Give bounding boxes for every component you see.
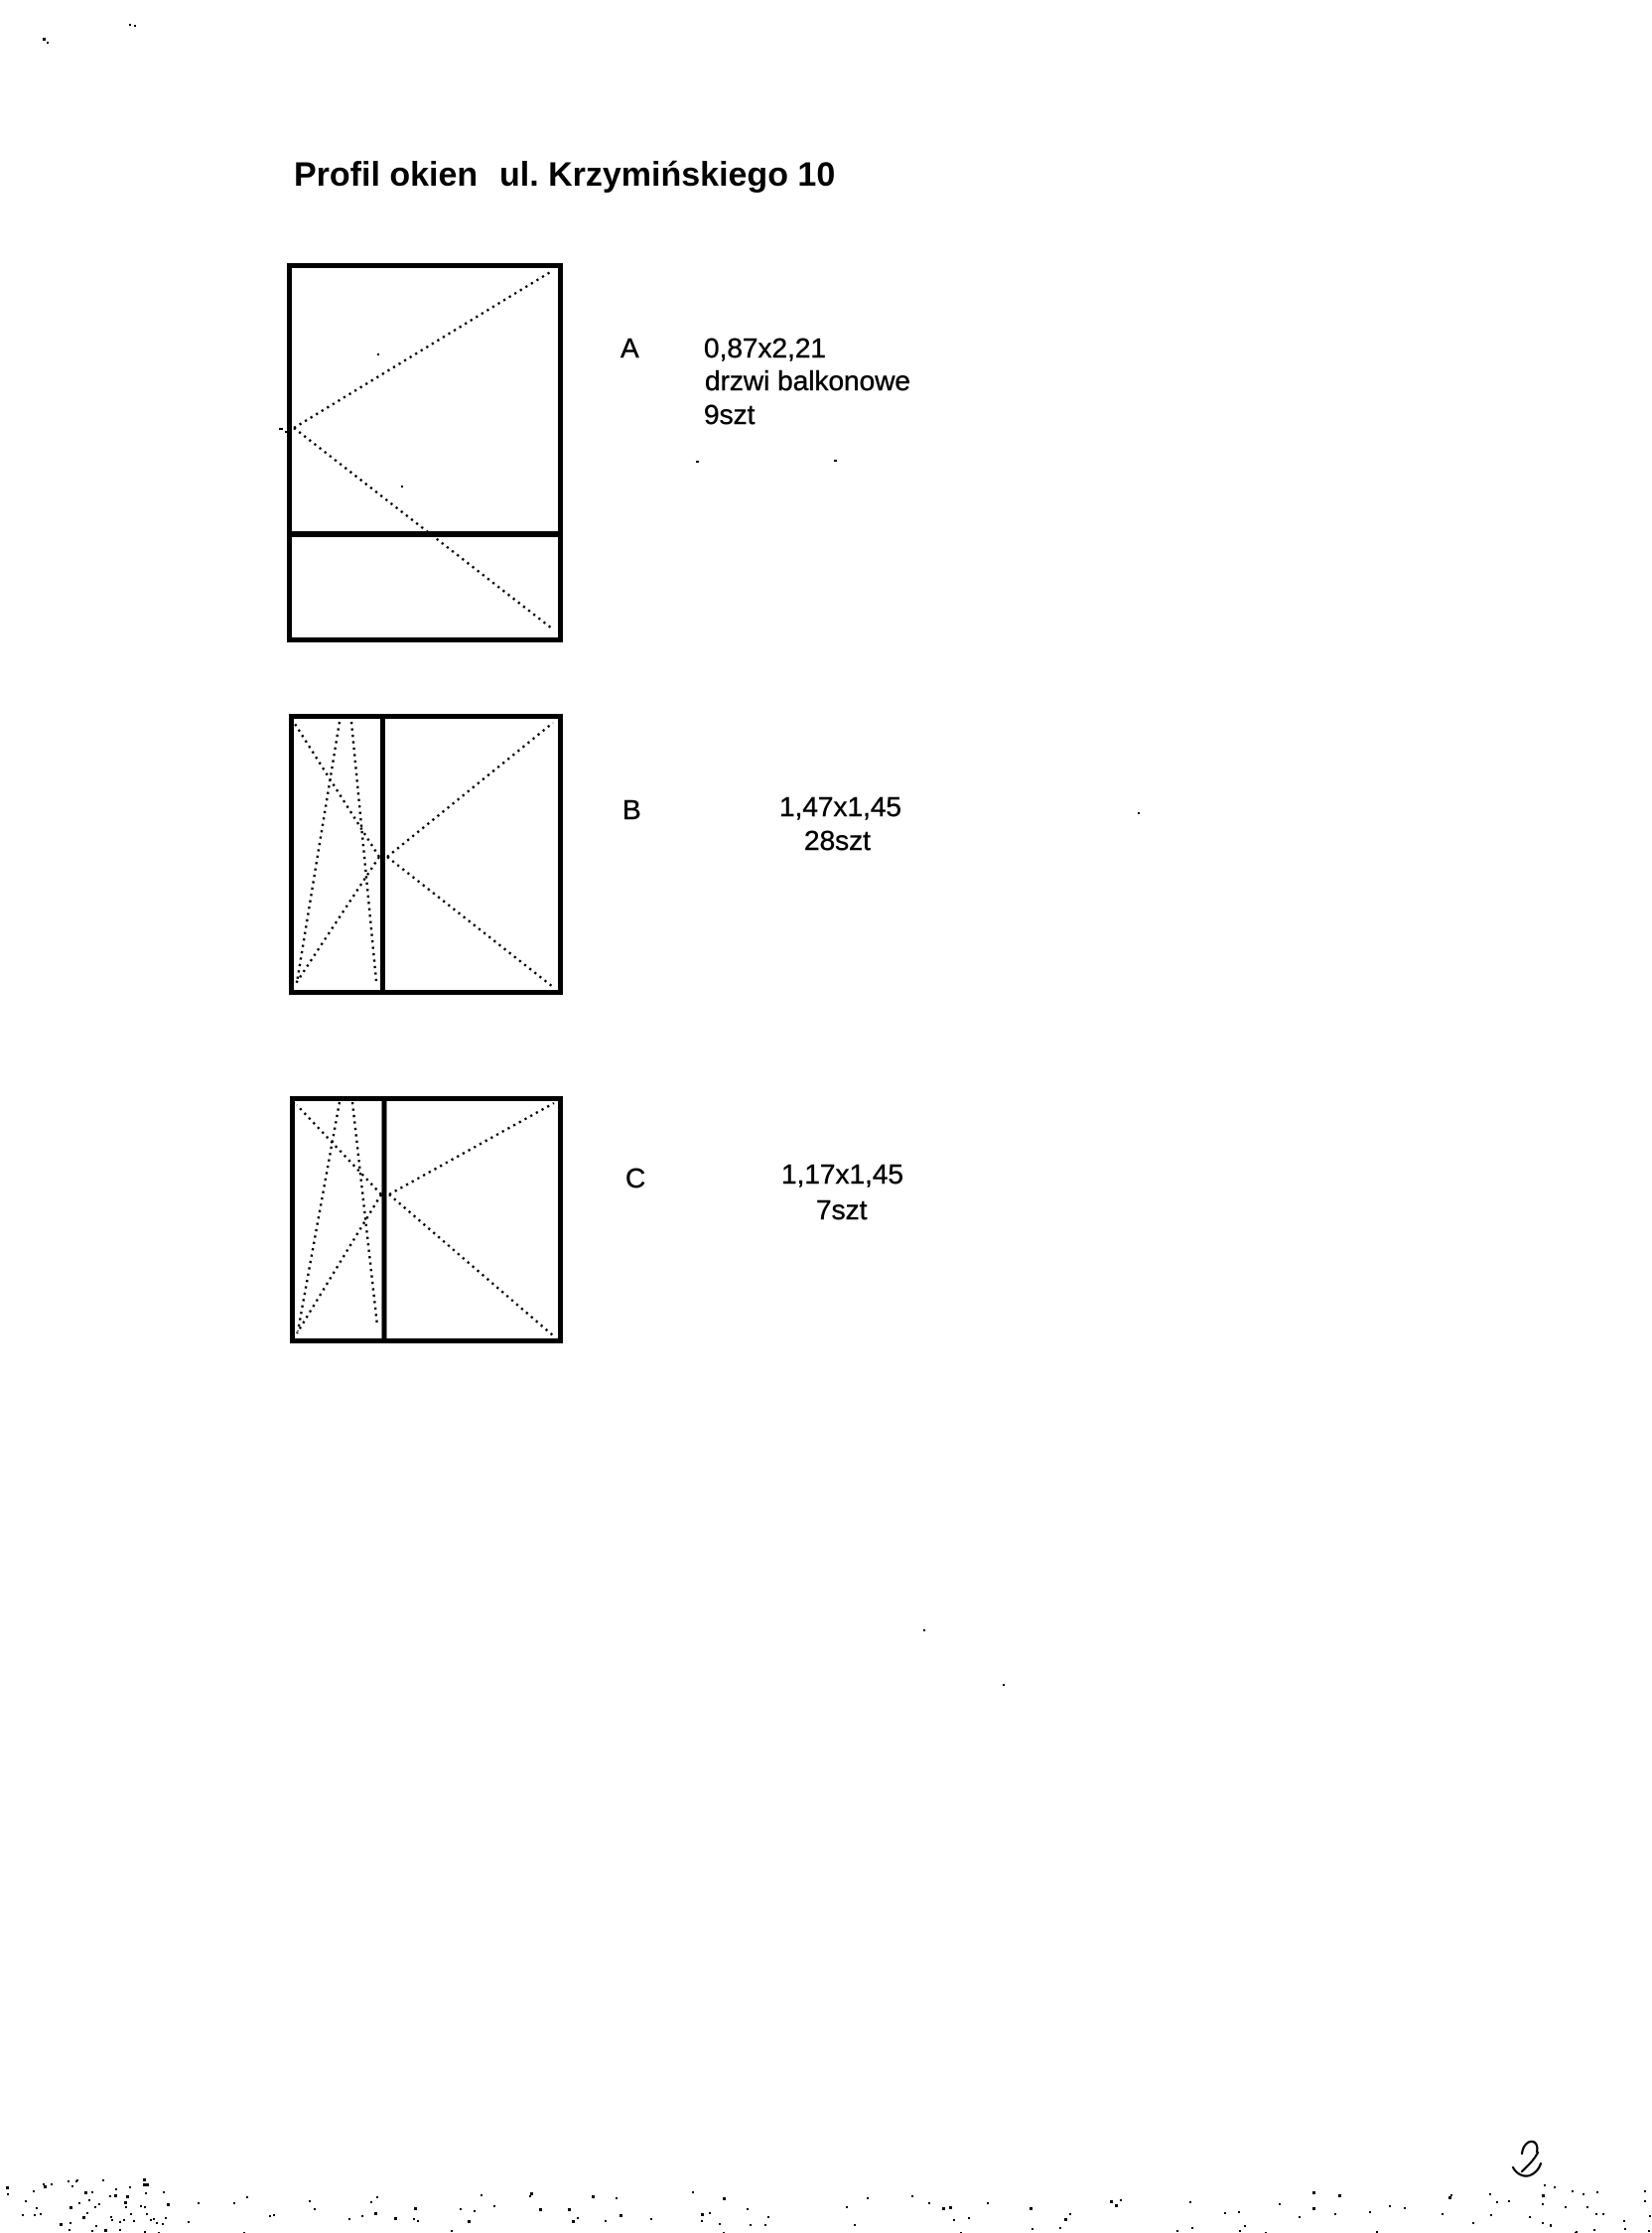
svg-text:Profil okien: Profil okien [294, 156, 478, 194]
svg-text:B: B [622, 794, 641, 825]
svg-text:0,87x2,21: 0,87x2,21 [704, 333, 826, 363]
svg-text:C: C [625, 1163, 645, 1193]
svg-text:9szt: 9szt [704, 399, 756, 430]
svg-text:28szt: 28szt [804, 825, 871, 856]
svg-text:1,17x1,45: 1,17x1,45 [781, 1159, 903, 1189]
svg-text:drzwi balkonowe: drzwi balkonowe [705, 365, 910, 396]
svg-text:7szt: 7szt [816, 1194, 868, 1225]
svg-text:A: A [620, 333, 639, 363]
svg-text:ul. Krzymińskiego 10: ul. Krzymińskiego 10 [499, 156, 835, 194]
svg-text:1,47x1,45: 1,47x1,45 [779, 791, 901, 822]
